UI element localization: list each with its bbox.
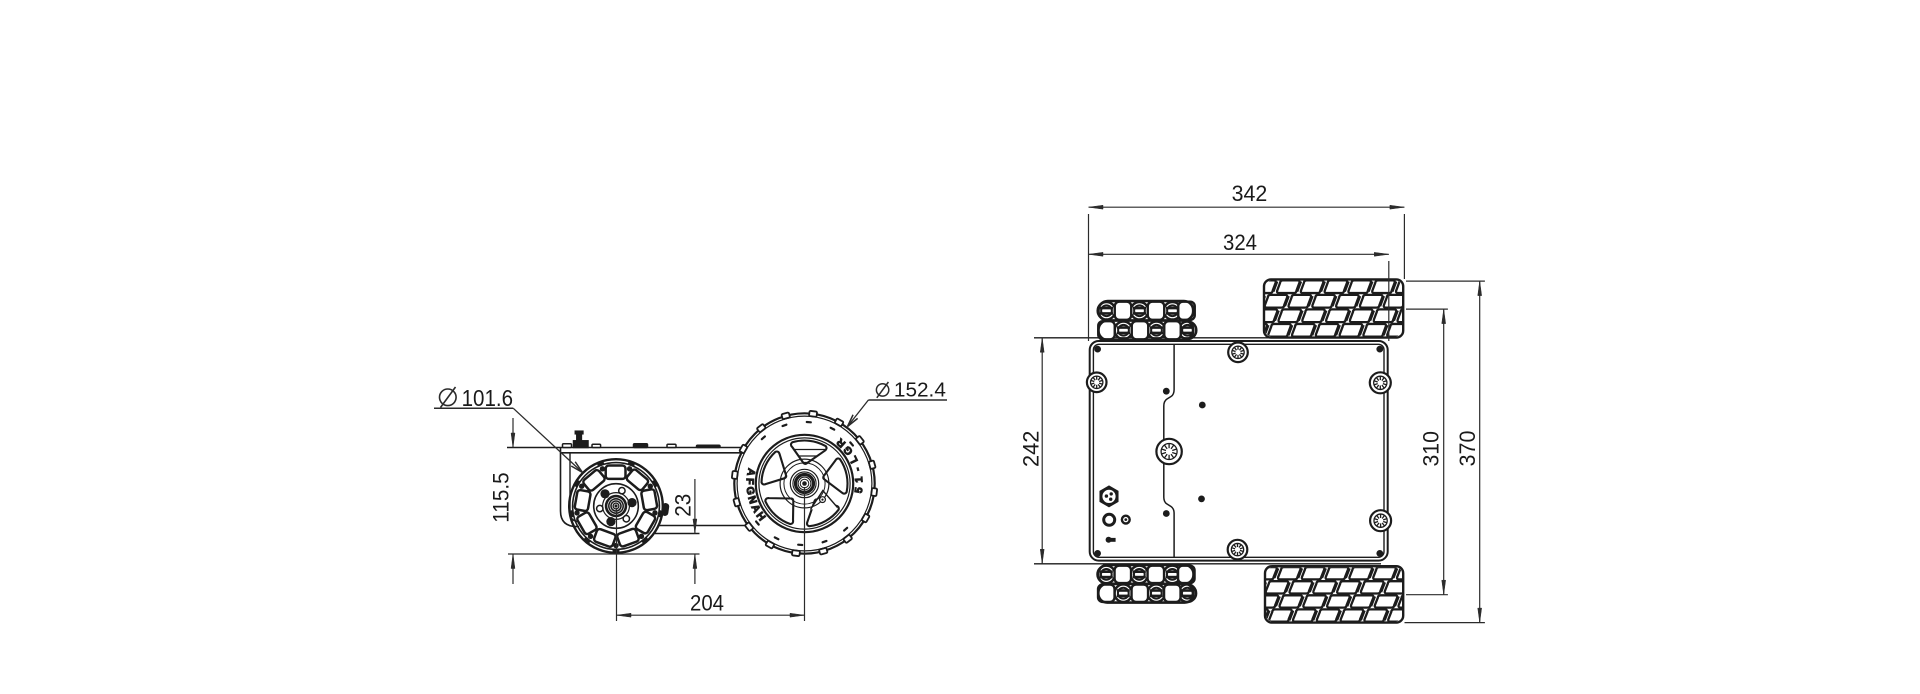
svg-text:204: 204 — [690, 590, 724, 615]
svg-text:370: 370 — [1455, 431, 1480, 467]
svg-text:152.4: 152.4 — [894, 379, 946, 401]
svg-text:310: 310 — [1419, 431, 1444, 466]
svg-text:115.5: 115.5 — [488, 472, 513, 522]
svg-text:242: 242 — [1018, 431, 1043, 467]
svg-text:G: G — [743, 486, 756, 496]
svg-text:101.6: 101.6 — [462, 385, 513, 411]
svg-text:F: F — [743, 478, 755, 485]
svg-text:342: 342 — [1232, 181, 1268, 206]
svg-text:23: 23 — [670, 494, 695, 517]
svg-text:324: 324 — [1223, 230, 1257, 255]
svg-text:1: 1 — [853, 476, 865, 483]
